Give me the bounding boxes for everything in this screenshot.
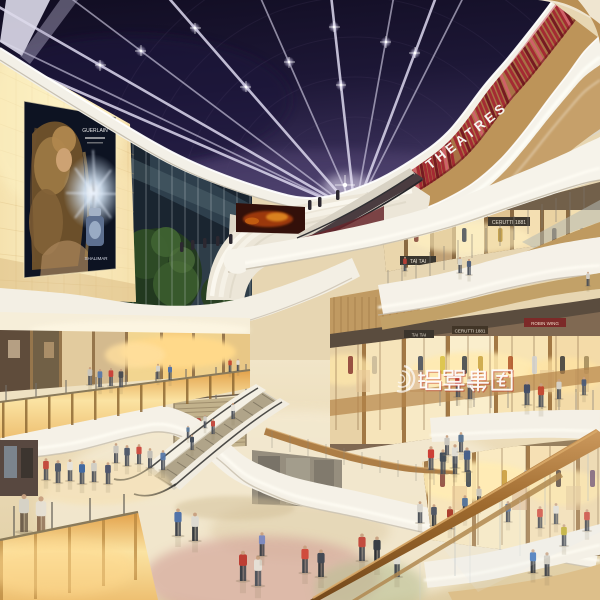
svg-text:SHALIMAR: SHALIMAR xyxy=(84,256,108,261)
svg-text:CERUTTI 1881: CERUTTI 1881 xyxy=(492,220,526,226)
svg-text:ROBIN WING: ROBIN WING xyxy=(531,321,559,326)
svg-text:GUERLAIN: GUERLAIN xyxy=(82,128,108,134)
svg-text:TAI TAI: TAI TAI xyxy=(410,259,426,265)
svg-text:CERUTTI 1881: CERUTTI 1881 xyxy=(455,329,486,334)
svg-text:TAI TAI: TAI TAI xyxy=(412,333,427,338)
